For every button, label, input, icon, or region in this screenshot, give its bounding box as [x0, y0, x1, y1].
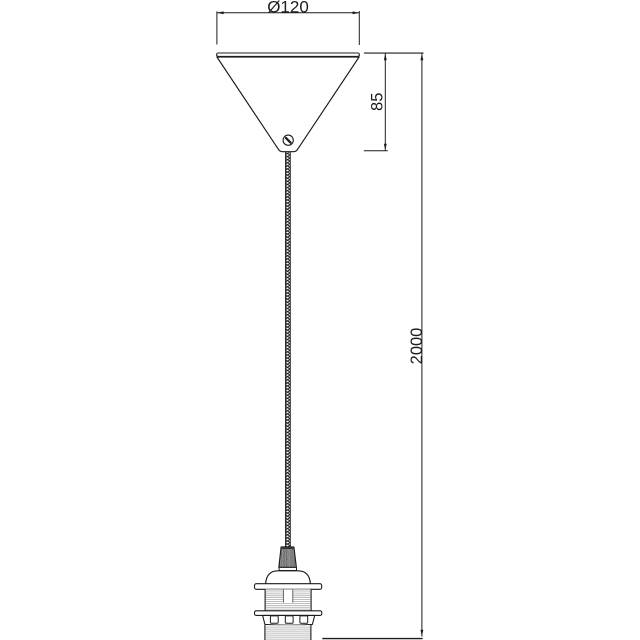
svg-text:Ø120: Ø120 [267, 0, 309, 17]
svg-text:85: 85 [369, 93, 387, 111]
svg-text:2000: 2000 [408, 328, 426, 365]
